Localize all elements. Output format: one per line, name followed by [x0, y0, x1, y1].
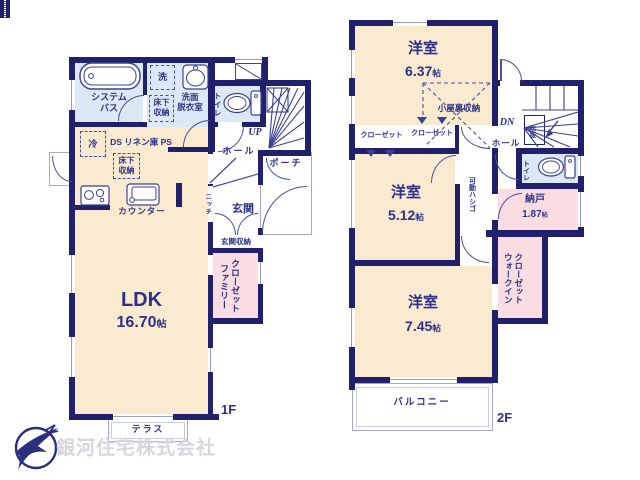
wall: [143, 57, 147, 95]
closet-door-mark: [437, 117, 447, 124]
bedroom3-area-value: 7.45: [405, 318, 432, 334]
terrace-label: テラス: [118, 424, 178, 435]
toilet-icon-2f: [536, 154, 578, 181]
window: [208, 348, 213, 372]
stove-icon: [80, 185, 110, 206]
company-name: 銀河住宅株式会社: [56, 437, 226, 460]
bath-label: システム バス: [75, 92, 143, 114]
toilet-label-2f: トイレ: [521, 156, 530, 184]
window-terrace-door: [113, 414, 173, 420]
stairs-up-label: UP: [245, 127, 265, 139]
area-unit: 帖: [415, 212, 424, 222]
area-unit: 帖: [432, 323, 441, 333]
window: [69, 255, 75, 293]
washroom-label: 洗面 脱衣室: [170, 92, 210, 113]
wall: [305, 80, 311, 156]
attic-storage-label: 小屋裏収納: [430, 103, 488, 113]
door-opening: [208, 255, 213, 275]
niche-label: ニッチ: [203, 186, 211, 222]
window: [349, 96, 355, 124]
hall-label-2f: ホール: [490, 138, 522, 148]
ducts-label: DS リネン庫 PS: [100, 137, 182, 147]
wall: [486, 230, 584, 237]
balcony-label: バルコニー: [384, 397, 460, 409]
bedroom2-area-label: 5.12帖: [376, 207, 436, 224]
closet1-label: クローゼット: [358, 132, 405, 141]
door-arc: [500, 59, 522, 81]
window-balcony-door: [390, 377, 457, 383]
window: [578, 156, 584, 176]
storage-room-label: 納戸: [507, 194, 563, 206]
closet-door-mark: [417, 117, 427, 124]
wall: [578, 80, 584, 156]
entrance-storage-label: 玄関収納: [214, 237, 258, 246]
washer-label: 洗: [150, 72, 175, 83]
bathtub-icon: [79, 62, 141, 90]
walkin-closet-label: ウォークイン クローゼット: [503, 241, 524, 315]
wall: [455, 184, 460, 266]
porch-label: ポーチ: [264, 158, 308, 169]
ldk-label: LDK: [94, 288, 189, 312]
stairs-down-label: DN: [496, 117, 518, 129]
wall: [457, 377, 495, 383]
toilet-icon-1f: [221, 88, 263, 118]
toilet-label-1f: トイレ: [213, 88, 222, 122]
bedroom1-area-label: 6.37帖: [393, 63, 453, 80]
wall: [258, 150, 311, 156]
wall: [492, 318, 548, 324]
wall: [176, 183, 182, 207]
bedroom3-label: 洋室: [393, 294, 453, 312]
washbasin-icon: [182, 63, 209, 90]
underfloor-storage-label: 床下 収納: [113, 156, 140, 176]
area-unit: 帖: [542, 212, 548, 219]
storage-area-value: 1.87: [522, 209, 541, 220]
ldk-area-label: 16.70帖: [94, 313, 189, 333]
window: [578, 192, 584, 227]
bedroom1-area-value: 6.37: [405, 63, 432, 79]
floor2-label: 2F: [497, 410, 527, 426]
window: [349, 308, 355, 347]
staircase-1f: [266, 86, 305, 150]
window: [349, 50, 355, 78]
utility-diagonal: [235, 63, 262, 80]
entry-step-lines: [206, 152, 262, 190]
entrance-storage-box: [8, 0, 10, 18]
wall: [258, 253, 263, 262]
room-ldk: [75, 127, 208, 414]
counter-label: カウンター: [112, 206, 172, 216]
window: [349, 160, 355, 228]
floor-plan: システム バス 洗 洗面 脱衣室 床下 収納 冷 DS リネン庫 PS 床下 収…: [0, 0, 640, 480]
closet-door-mark: [366, 150, 376, 157]
area-unit: 帖: [157, 319, 167, 330]
wall: [542, 237, 548, 324]
ldk-area-value: 16.70: [117, 314, 157, 331]
bedroom1-label: 洋室: [393, 40, 453, 58]
family-closet-label: ファミリー クローゼット: [218, 256, 240, 316]
window: [393, 20, 427, 26]
wall: [349, 260, 459, 266]
wall: [349, 377, 390, 383]
wall: [208, 248, 263, 253]
area-unit: 帖: [432, 68, 441, 78]
storage-room-area-label: 1.87帖: [507, 209, 563, 221]
kitchen-sink-icon: [126, 183, 160, 206]
closet-door-mark: [385, 150, 395, 157]
bedroom2-area-value: 5.12: [388, 207, 415, 223]
movable-ladder-label: 可動ハシゴ: [467, 169, 476, 219]
bedroom2-label: 洋室: [376, 184, 436, 202]
genkan-label: 玄関: [226, 203, 260, 216]
underfloor-storage-label: 床下 収納: [149, 98, 174, 118]
wall: [69, 122, 147, 127]
window: [258, 262, 263, 284]
window: [69, 337, 75, 377]
door-leaf: [500, 59, 502, 81]
door-arc: [461, 236, 489, 263]
stair-direction-arrow: [545, 119, 561, 139]
bedroom3-area-label: 7.45帖: [393, 318, 453, 335]
wall: [208, 318, 263, 324]
door-arc: [495, 155, 519, 180]
floor1-label: 1F: [221, 402, 251, 418]
company-logo-bird: [11, 421, 61, 475]
hall-label-1f: ホール: [218, 146, 260, 157]
closet2-label: クローゼット: [410, 130, 454, 139]
void-label: 吹抜: [527, 118, 535, 144]
